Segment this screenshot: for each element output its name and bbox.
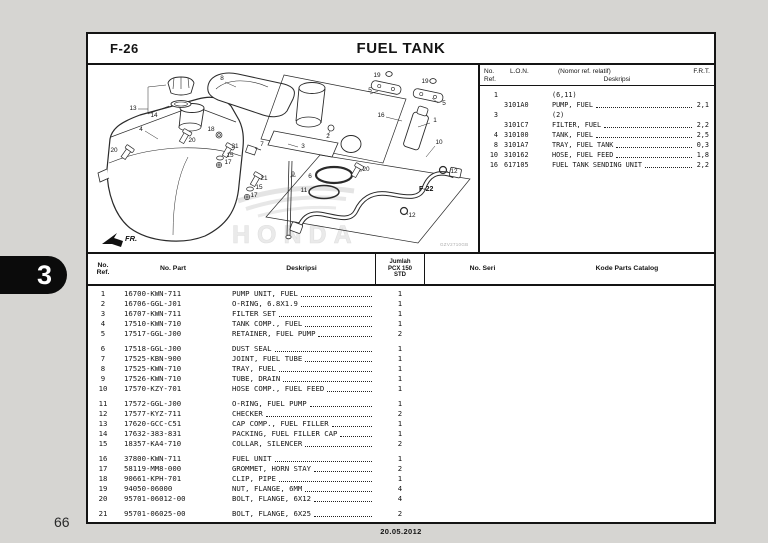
parts-row: 11 17572-GGL-J00 O-RING, FUEL PUMP 1	[88, 399, 714, 409]
part-description: CLIP, PIPE	[232, 474, 276, 484]
callout-20: 20	[110, 147, 118, 154]
front-direction-label: FR.	[125, 234, 137, 243]
part-description: FUEL UNIT	[232, 454, 272, 464]
part-ref: 9	[88, 374, 118, 384]
dotted-leader	[279, 309, 372, 317]
part-catalog-code	[540, 464, 714, 474]
parts-row: 19 94050-06000 NUT, FLANGE, 6MM 4	[88, 484, 714, 494]
part-catalog-code	[540, 344, 714, 354]
parts-row: 16 37800-KWN-711 FUEL UNIT 1	[88, 454, 714, 464]
callout-15: 15	[226, 152, 234, 159]
ref-no: 16	[484, 160, 504, 170]
ref-description: TANK, FUEL	[552, 130, 593, 140]
part-ref: 1	[88, 289, 118, 299]
part-serial	[425, 419, 540, 429]
reference-row: 10 310162 HOSE, FUEL FEED 1,8	[484, 150, 709, 160]
part-number: 17525-KBN-900	[118, 354, 228, 364]
parts-row: 10 17570-KZY-701 HOSE COMP., FUEL FEED 1	[88, 384, 714, 394]
part-quantity: 1	[375, 299, 425, 309]
callout-19: 19	[373, 72, 381, 79]
part-number: 95701-06025-00	[118, 509, 228, 519]
callout-17: 17	[250, 192, 258, 199]
part-number: 17632-383-831	[118, 429, 228, 439]
part-ref: 3	[88, 309, 118, 319]
dotted-leader	[275, 344, 372, 352]
frt-value	[695, 90, 709, 100]
dotted-leader	[596, 130, 692, 138]
front-direction-arrow-icon: FR.	[102, 233, 137, 247]
part-ref: 4	[88, 319, 118, 329]
dotted-leader	[327, 384, 372, 392]
part-description: CHECKER	[232, 409, 263, 419]
part-number: 17518-GGL-J00	[118, 344, 228, 354]
reference-row: 1 (6,11)	[484, 90, 709, 100]
parts-row: 13 17620-GCC-C51 CAP COMP., FUEL FILLER …	[88, 419, 714, 429]
callout-5: 5	[442, 100, 446, 107]
parts-table-header: No. Ref. No. Part Deskripsi Jumlah PCX 1…	[88, 254, 714, 286]
part-description: O-RING, 6.8X1.9	[232, 299, 298, 309]
part-serial	[425, 319, 540, 329]
callout-21: 21	[260, 175, 268, 182]
dotted-leader	[301, 289, 372, 297]
part-ref: 11	[88, 399, 118, 409]
parts-row: 5 17517-GGL-J00 RETAINER, FUEL PUMP 2	[88, 329, 714, 339]
part-catalog-code	[540, 329, 714, 339]
part-catalog-code	[540, 409, 714, 419]
part-serial	[425, 454, 540, 464]
cross-reference-label: F-22	[419, 186, 434, 193]
callout-16: 16	[377, 112, 385, 119]
ref-description: (2)	[552, 110, 564, 120]
part-catalog-code	[540, 494, 714, 504]
part-catalog-code	[540, 374, 714, 384]
part-ref: 15	[88, 439, 118, 449]
dotted-leader	[305, 484, 372, 492]
part-ref: 20	[88, 494, 118, 504]
dotted-leader	[279, 364, 372, 372]
parts-desc-header: Deskripsi	[228, 265, 375, 273]
part-catalog-code	[540, 509, 714, 519]
ref-description: (6,11)	[552, 90, 577, 100]
reference-row: 3 (2)	[484, 110, 709, 120]
exploded-view-diagram: HONDA	[88, 65, 478, 252]
part-serial	[425, 384, 540, 394]
part-ref: 8	[88, 364, 118, 374]
reference-row: 8 3101A7 TRAY, FUEL TANK 0,3	[484, 140, 709, 150]
part-description: NUT, FLANGE, 6MM	[232, 484, 302, 494]
dotted-leader	[305, 354, 372, 362]
fuel-tank-drawing	[98, 97, 243, 241]
parts-row: 2 16706-GGL-J01 O-RING, 6.8X1.9 1	[88, 299, 714, 309]
oring-drawing	[309, 167, 352, 199]
part-catalog-code	[540, 439, 714, 449]
part-ref: 5	[88, 329, 118, 339]
part-ref: 10	[88, 384, 118, 394]
part-catalog-code	[540, 454, 714, 464]
parts-table-rows: 1 16700-KWN-711 PUMP UNIT, FUEL 1 2 1670…	[88, 286, 714, 519]
part-quantity: 2	[375, 439, 425, 449]
parts-row: 3 16707-KWN-711 FILTER SET 1	[88, 309, 714, 319]
part-number: 17570-KZY-701	[118, 384, 228, 394]
dotted-leader	[596, 100, 692, 108]
part-quantity: 2	[375, 464, 425, 474]
callout-12: 12	[408, 212, 416, 219]
part-ref: 18	[88, 474, 118, 484]
part-serial	[425, 354, 540, 364]
callout-18: 18	[207, 126, 215, 133]
reference-row: 4 310100 TANK, FUEL 2,5	[484, 130, 709, 140]
upper-section: HONDA	[88, 65, 714, 252]
dotted-leader	[314, 464, 372, 472]
part-number: 17526-KWN-710	[118, 374, 228, 384]
frt-value: 0,3	[695, 140, 709, 150]
part-serial	[425, 429, 540, 439]
date-stamp: 20.05.2012	[86, 527, 716, 536]
part-catalog-code	[540, 399, 714, 409]
reference-row: 3101A0 PUMP, FUEL 2,1	[484, 100, 709, 110]
part-description: HOSE COMP., FUEL FEED	[232, 384, 324, 394]
callout-4: 4	[139, 126, 143, 133]
reference-row: 16 617105 FUEL TANK SENDING UNIT 2,2	[484, 160, 709, 170]
ref-no: 4	[484, 130, 504, 140]
ref-description: TRAY, FUEL TANK	[552, 140, 613, 150]
frt-value: 1,8	[695, 150, 709, 160]
diagram-svg: HONDA	[88, 65, 478, 252]
part-catalog-code	[540, 484, 714, 494]
callout-13: 13	[129, 105, 137, 112]
part-ref: 7	[88, 354, 118, 364]
callout-8: 8	[220, 75, 224, 82]
ref-no	[484, 120, 504, 130]
callout-2: 2	[326, 133, 330, 140]
part-description: BOLT, FLANGE, 6X12	[232, 494, 311, 504]
dotted-leader	[332, 419, 372, 427]
part-quantity: 4	[375, 484, 425, 494]
part-quantity: 1	[375, 384, 425, 394]
part-ref: 17	[88, 464, 118, 474]
part-description: O-RING, FUEL PUMP	[232, 399, 307, 409]
part-description: RETAINER, FUEL PUMP	[232, 329, 315, 339]
part-serial	[425, 484, 540, 494]
page-header: F-26 FUEL TANK	[88, 34, 714, 65]
part-quantity: 2	[375, 509, 425, 519]
part-number: 17572-GGL-J00	[118, 399, 228, 409]
part-number: 16707-KWN-711	[118, 309, 228, 319]
callout-12: 12	[450, 168, 458, 175]
dotted-leader	[283, 374, 372, 382]
part-catalog-code	[540, 289, 714, 299]
part-ref: 19	[88, 484, 118, 494]
part-quantity: 1	[375, 419, 425, 429]
reference-table: No. Ref. L.O.N. (Nomor ref. relatif) Des…	[478, 65, 714, 252]
dotted-leader	[318, 329, 372, 337]
dotted-leader	[305, 439, 372, 447]
frt-value: 2,5	[695, 130, 709, 140]
lon-code: 310100	[504, 130, 552, 140]
part-catalog-code	[540, 354, 714, 364]
page-number: 66	[54, 514, 70, 530]
callout-10: 10	[435, 139, 443, 146]
reference-row: 3101C7 FILTER, FUEL 2,2	[484, 120, 709, 130]
parts-row: 21 95701-06025-00 BOLT, FLANGE, 6X25 2	[88, 509, 714, 519]
ref-description: PUMP, FUEL	[552, 100, 593, 110]
part-serial	[425, 329, 540, 339]
part-quantity: 1	[375, 429, 425, 439]
part-quantity: 2	[375, 329, 425, 339]
callout-15: 15	[255, 184, 263, 191]
frt-value: 2,1	[695, 100, 709, 110]
part-serial	[425, 409, 540, 419]
part-quantity: 1	[375, 364, 425, 374]
parts-table: No. Ref. No. Part Deskripsi Jumlah PCX 1…	[88, 252, 714, 522]
part-description: BOLT, FLANGE, 6X25	[232, 509, 311, 519]
part-serial	[425, 494, 540, 504]
callout-7: 7	[260, 141, 264, 148]
part-serial	[425, 344, 540, 354]
part-serial	[425, 364, 540, 374]
part-ref: 16	[88, 454, 118, 464]
ref-no: 10	[484, 150, 504, 160]
part-serial	[425, 474, 540, 484]
part-number: 18357-KA4-710	[118, 439, 228, 449]
fuel-filler-cap-drawing	[168, 77, 194, 107]
part-description: FILTER SET	[232, 309, 276, 319]
part-number: 17525-KWN-710	[118, 364, 228, 374]
ref-no: 1	[484, 90, 504, 100]
callout-20: 20	[362, 166, 370, 173]
ref-no: 8	[484, 140, 504, 150]
parts-row: 6 17518-GGL-J00 DUST SEAL 1	[88, 344, 714, 354]
part-number: 16700-KWN-711	[118, 289, 228, 299]
callout-19: 19	[421, 78, 429, 85]
reference-table-header: No. Ref. L.O.N. (Nomor ref. relatif) Des…	[480, 65, 714, 86]
part-catalog-code	[540, 429, 714, 439]
part-description: DUST SEAL	[232, 344, 272, 354]
part-catalog-code	[540, 384, 714, 394]
parts-row: 20 95701-06012-00 BOLT, FLANGE, 6X12 4	[88, 494, 714, 504]
part-number: 17510-KWN-710	[118, 319, 228, 329]
ref-no	[484, 100, 504, 110]
lon-col-header: L.O.N.	[510, 68, 556, 83]
frt-value	[695, 110, 709, 120]
callout-5: 5	[368, 87, 372, 94]
dotted-leader	[275, 454, 372, 462]
callout-14: 14	[150, 112, 158, 119]
parts-serial-header: No. Seri	[425, 265, 540, 273]
ref-description: FUEL TANK SENDING UNIT	[552, 160, 642, 170]
part-serial	[425, 464, 540, 474]
frt-value: 2,2	[695, 160, 709, 170]
parts-row: 9 17526-KWN-710 TUBE, DRAIN 1	[88, 374, 714, 384]
parts-row: 15 18357-KA4-710 COLLAR, SILENCER 2	[88, 439, 714, 449]
parts-qty-header: Jumlah PCX 150 STD	[375, 254, 425, 284]
lon-code: 3101A7	[504, 140, 552, 150]
part-quantity: 2	[375, 409, 425, 419]
ref-no: 3	[484, 110, 504, 120]
part-description: TUBE, DRAIN	[232, 374, 280, 384]
parts-partno-header: No. Part	[118, 265, 228, 273]
part-catalog-code	[540, 474, 714, 484]
part-description: GROMMET, HORN STAY	[232, 464, 311, 474]
callout-9: 9	[291, 171, 295, 178]
figure-code: GZV2710GB	[440, 242, 468, 247]
part-description: TANK COMP., FUEL	[232, 319, 302, 329]
dotted-leader	[314, 509, 372, 517]
part-serial	[425, 509, 540, 519]
dotted-leader	[616, 150, 692, 158]
callout-6: 6	[308, 173, 312, 180]
part-serial	[425, 399, 540, 409]
callout-3: 3	[301, 143, 305, 150]
part-quantity: 1	[375, 289, 425, 299]
lon-code: 3101C7	[504, 120, 552, 130]
parts-catalog-header: Kode Parts Catalog	[540, 265, 714, 273]
ref-col-header: No. Ref.	[484, 68, 510, 83]
part-number: 94050-06000	[118, 484, 228, 494]
frt-col-header: F.R.T.	[678, 68, 710, 83]
dotted-leader	[340, 429, 372, 437]
part-quantity: 1	[375, 319, 425, 329]
part-catalog-code	[540, 319, 714, 329]
part-number: 17577-KYZ-711	[118, 409, 228, 419]
reference-table-rows: 1 (6,11) 3101A0 PUMP, FUEL	[480, 86, 714, 170]
part-serial	[425, 439, 540, 449]
part-description: PACKING, FUEL FILLER CAP	[232, 429, 337, 439]
part-quantity: 4	[375, 494, 425, 504]
frt-value: 2,2	[695, 120, 709, 130]
parts-row: 8 17525-KWN-710 TRAY, FUEL 1	[88, 364, 714, 374]
part-number: 17620-GCC-C51	[118, 419, 228, 429]
part-number: 90661-KPH-701	[118, 474, 228, 484]
dotted-leader	[616, 140, 692, 148]
part-quantity: 1	[375, 454, 425, 464]
part-description: COLLAR, SILENCER	[232, 439, 302, 449]
part-description: CAP COMP., FUEL FILLER	[232, 419, 329, 429]
callout-1: 1	[433, 117, 437, 124]
callout-20: 20	[188, 137, 196, 144]
part-quantity: 1	[375, 309, 425, 319]
lon-code	[504, 110, 552, 120]
dotted-leader	[645, 160, 692, 168]
dotted-leader	[305, 319, 372, 327]
section-code: F-26	[110, 41, 139, 56]
part-number: 17517-GGL-J00	[118, 329, 228, 339]
lon-code: 3101A0	[504, 100, 552, 110]
parts-row: 1 16700-KWN-711 PUMP UNIT, FUEL 1	[88, 289, 714, 299]
part-catalog-code	[540, 364, 714, 374]
part-catalog-code	[540, 299, 714, 309]
part-serial	[425, 299, 540, 309]
catalog-page: F-26 FUEL TANK HONDA	[86, 32, 716, 524]
page-title: FUEL TANK	[88, 40, 714, 57]
part-serial	[425, 309, 540, 319]
parts-row: 17 58119-MM8-000 GROMMET, HORN STAY 2	[88, 464, 714, 474]
parts-row: 4 17510-KWN-710 TANK COMP., FUEL 1	[88, 319, 714, 329]
callout-11: 11	[301, 187, 308, 194]
part-quantity: 1	[375, 354, 425, 364]
part-catalog-code	[540, 309, 714, 319]
part-number: 16706-GGL-J01	[118, 299, 228, 309]
part-quantity: 1	[375, 374, 425, 384]
part-ref: 12	[88, 409, 118, 419]
dotted-leader	[310, 399, 372, 407]
part-number: 37800-KWN-711	[118, 454, 228, 464]
part-quantity: 1	[375, 474, 425, 484]
desc-note-header: (Nomor ref. relatif)	[556, 68, 678, 76]
dotted-leader	[301, 299, 372, 307]
callout-21: 21	[231, 143, 239, 150]
parts-row: 7 17525-KBN-900 JOINT, FUEL TUBE 1	[88, 354, 714, 364]
dotted-leader	[604, 120, 692, 128]
part-number: 58119-MM8-000	[118, 464, 228, 474]
parts-row: 14 17632-383-831 PACKING, FUEL FILLER CA…	[88, 429, 714, 439]
part-ref: 14	[88, 429, 118, 439]
part-ref: 13	[88, 419, 118, 429]
ref-description: FILTER, FUEL	[552, 120, 601, 130]
part-serial	[425, 374, 540, 384]
lon-code: 310162	[504, 150, 552, 160]
parts-row: 12 17577-KYZ-711 CHECKER 2	[88, 409, 714, 419]
lon-code: 617105	[504, 160, 552, 170]
part-description: PUMP UNIT, FUEL	[232, 289, 298, 299]
dotted-leader	[314, 494, 372, 502]
callout-17: 17	[224, 159, 232, 166]
chapter-tab: 3	[0, 256, 67, 294]
part-serial	[425, 289, 540, 299]
part-ref: 6	[88, 344, 118, 354]
part-quantity: 1	[375, 399, 425, 409]
part-catalog-code	[540, 419, 714, 429]
part-number: 95701-06012-00	[118, 494, 228, 504]
part-description: TRAY, FUEL	[232, 364, 276, 374]
dotted-leader	[279, 474, 372, 482]
part-description: JOINT, FUEL TUBE	[232, 354, 302, 364]
lon-code	[504, 90, 552, 100]
part-quantity: 1	[375, 344, 425, 354]
desc-col-header: Deskripsi	[556, 76, 678, 84]
part-ref: 21	[88, 509, 118, 519]
chapter-tab-number: 3	[37, 260, 52, 291]
part-ref: 2	[88, 299, 118, 309]
dotted-leader	[266, 409, 372, 417]
parts-ref-header: No. Ref.	[88, 262, 118, 277]
parts-row: 18 90661-KPH-701 CLIP, PIPE 1	[88, 474, 714, 484]
ref-description: HOSE, FUEL FEED	[552, 150, 613, 160]
